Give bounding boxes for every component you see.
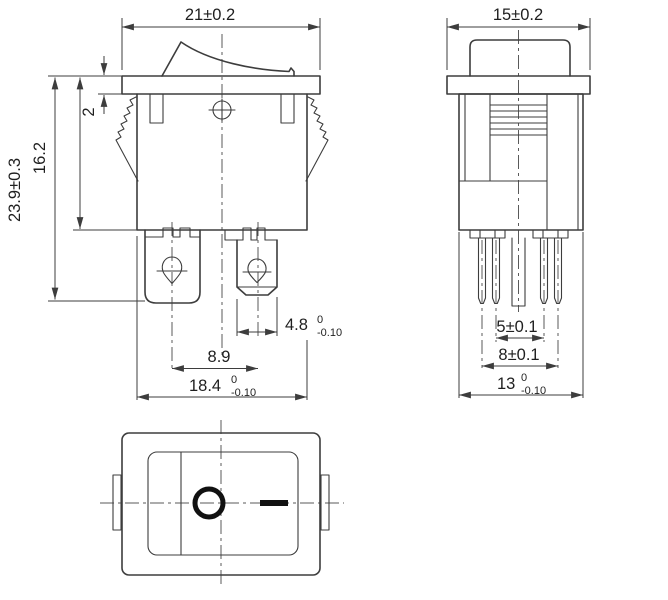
dim-front-body-width: 18.4 0 -0.10 — [189, 374, 256, 399]
dim-lower-tolerance: -0.10 — [317, 327, 342, 339]
dim-front-top-width: 21±0.2 — [185, 6, 235, 24]
terminal-right-hole — [248, 259, 266, 283]
dim-front-overall-height: 23.9±0.3 — [6, 158, 24, 222]
dim-lower-tolerance: -0.10 — [521, 385, 546, 397]
front-terminal-right — [225, 228, 277, 295]
drawing-canvas: 21±0.2 23.9±0.3 16.2 2 4.8 0 -0.10 8.9 1… — [0, 0, 668, 600]
side-view: 15±0.2 5±0.1 8±0.1 13 0 -0.10 — [447, 6, 590, 398]
dim-front-terminal-width: 4.8 0 -0.10 — [285, 314, 342, 339]
dim-upper-tolerance: 0 — [317, 314, 323, 326]
front-mounting-wing-left — [116, 97, 138, 181]
front-centerlines — [172, 34, 258, 372]
terminal-right-top-edge — [237, 240, 277, 287]
dim-lower-tolerance: -0.10 — [231, 387, 256, 399]
dim-value: 4.8 — [285, 316, 308, 334]
screw-boss-cross — [209, 99, 235, 121]
dim-upper-tolerance: 0 — [521, 372, 527, 384]
dim-front-terminal-pitch: 8.9 — [208, 348, 231, 366]
front-view: 21±0.2 23.9±0.3 16.2 2 4.8 0 -0.10 8.9 1… — [6, 6, 342, 400]
dim-side-body-depth: 13 0 -0.10 — [497, 372, 546, 397]
side-pins — [479, 238, 562, 306]
dim-side-outer-pin-pitch: 8±0.1 — [498, 346, 539, 364]
technical-drawing: 21±0.2 23.9±0.3 16.2 2 4.8 0 -0.10 8.9 1… — [0, 0, 668, 600]
front-mounting-wing-right — [306, 97, 328, 181]
terminal-right-step — [225, 230, 237, 240]
dim-front-body-height: 16.2 — [31, 142, 49, 174]
front-flange — [122, 76, 320, 94]
front-rocker-profile — [162, 42, 294, 76]
front-screw-boss — [209, 99, 235, 121]
bottom-view — [100, 420, 344, 588]
dim-value: 18.4 — [189, 377, 221, 395]
bottom-off-symbol — [260, 500, 288, 506]
side-rocker-button — [470, 40, 570, 76]
dim-value: 13 — [497, 375, 515, 393]
dim-front-flange-thickness: 2 — [80, 107, 98, 116]
dim-upper-tolerance: 0 — [231, 374, 237, 386]
dim-side-inner-pin-pitch: 5±0.1 — [496, 318, 537, 336]
side-body — [459, 94, 583, 230]
dim-side-top-width: 15±0.2 — [493, 6, 543, 24]
